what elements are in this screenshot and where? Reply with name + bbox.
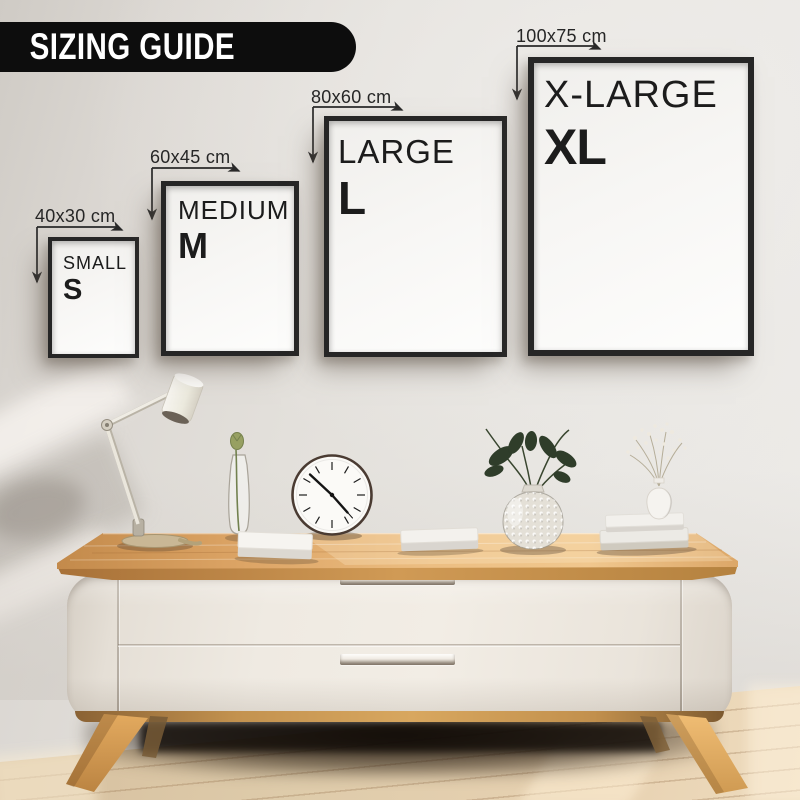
frame-large-name-label: LARGE [338,135,502,168]
cabinet-door-seam [680,580,682,716]
frame-medium-name-label: MEDIUM [178,197,294,223]
frame-small-paper: SMALL S [52,241,135,354]
frame-small-letter-label: S [63,276,135,305]
drawer-handle [340,574,455,585]
frame-small: SMALL S [48,237,139,358]
wall-light-streak [0,356,133,480]
title-banner: SIZING GUIDE [0,22,356,72]
flower-heads [626,422,686,459]
cabinet-base-trim [75,711,724,722]
dimension-label-x-large: 100x75 cm [516,26,607,47]
sunlight-patch [0,748,97,800]
lamp-head [159,371,205,427]
drawer-handle [340,654,455,665]
frame-small-name-label: SMALL [63,254,135,272]
frame-x-large: X-LARGE XL [528,57,754,356]
cabinet-shadow [140,722,660,752]
frame-medium-letter-label: M [178,228,294,264]
sunlight-patch [748,684,800,800]
frame-medium-paper: MEDIUM M [166,186,294,351]
frame-medium: MEDIUM M [161,181,299,356]
frame-x-large-paper: X-LARGE XL [534,63,748,350]
dimension-label-small: 40x30 cm [35,206,115,227]
frame-large-letter-label: L [338,175,502,221]
sizing-guide-scene: SMALL S MEDIUM M LARGE L X-LARGE XL 40x3… [0,0,800,800]
frame-x-large-letter-label: XL [544,122,748,172]
frame-large: LARGE L [324,116,507,357]
frame-x-large-name-label: X-LARGE [544,76,748,114]
cabinet-door-seam [117,580,119,716]
sideboard-cabinet [67,574,732,722]
drawer-divider [118,644,680,647]
dimension-label-large: 80x60 cm [311,87,391,108]
title-banner-label: SIZING GUIDE [0,26,235,68]
frame-large-paper: LARGE L [329,121,502,352]
dimension-label-medium: 60x45 cm [150,147,230,168]
